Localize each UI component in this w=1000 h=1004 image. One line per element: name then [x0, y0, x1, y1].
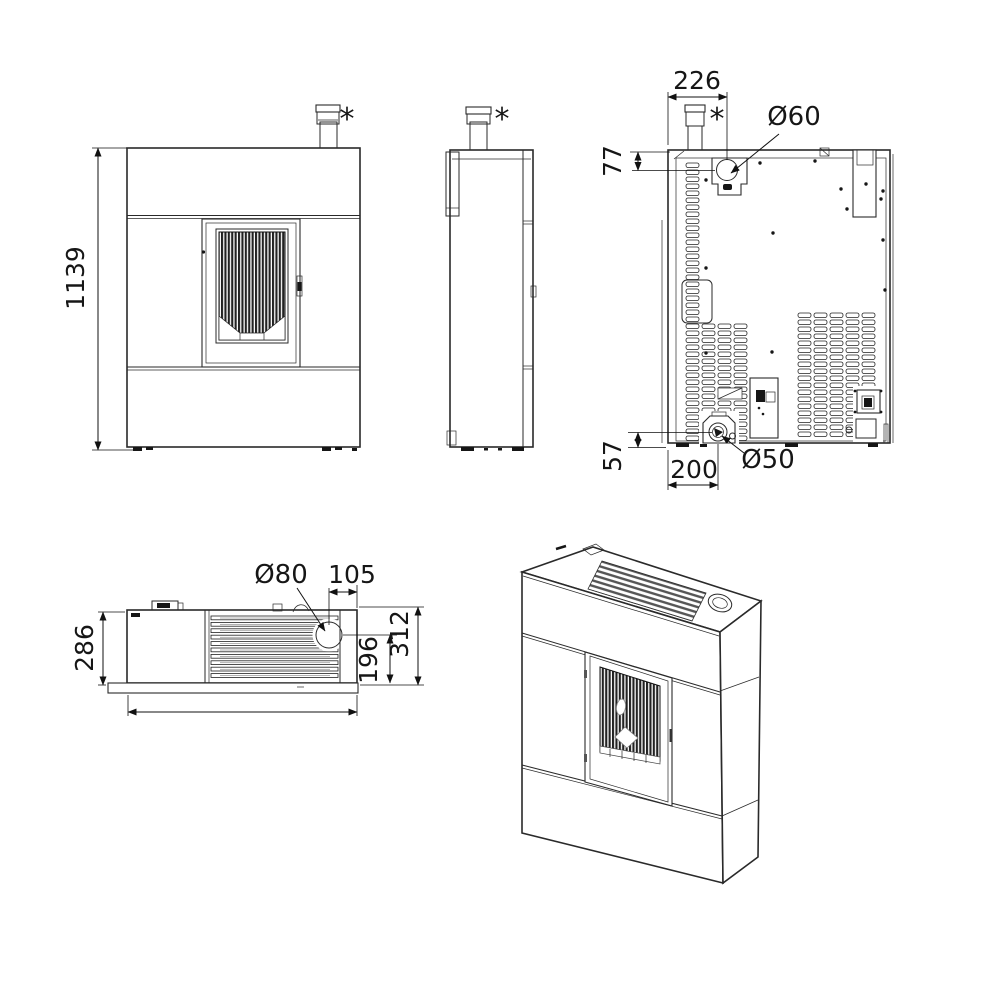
front-view: *: [61, 102, 360, 451]
front-door-hinge: [202, 250, 205, 253]
rear-chimney-pipe: [685, 105, 705, 150]
rear-view: *: [598, 66, 893, 490]
isometric-view: [522, 544, 761, 883]
top-105-label: 105: [328, 560, 376, 589]
side-view: *: [446, 102, 536, 451]
top-286-label: 286: [70, 624, 99, 672]
rear-chimney-asterisk: *: [710, 102, 725, 137]
front-chimney-pipe: [316, 105, 340, 148]
side-chimney-pipe: [466, 107, 491, 150]
top-d80-label: Ø80: [254, 560, 308, 590]
rear-flue-outlet: [699, 411, 739, 444]
front-chimney-asterisk: *: [340, 102, 355, 137]
dim-top-286: 286: [70, 612, 125, 685]
rear-226-label: 226: [673, 66, 721, 95]
dim-front-height: 1139: [61, 148, 133, 450]
top-front-edge: [108, 683, 358, 693]
side-body: [450, 150, 533, 447]
iso-right-face: [720, 601, 761, 883]
dim-top-width-unlabeled: [128, 695, 357, 716]
rear-d60-label: Ø60: [767, 102, 821, 132]
side-chimney-asterisk: *: [495, 102, 510, 137]
front-door: [202, 219, 302, 367]
top-312-label: 312: [385, 610, 414, 658]
rear-vent-column: [686, 163, 699, 322]
front-height-label: 1139: [61, 246, 90, 310]
top-view: 286 Ø80 105 196 312: [70, 560, 424, 716]
top-control-panel: [152, 601, 183, 610]
rear-57-label: 57: [598, 440, 627, 472]
iso-door: [584, 652, 672, 806]
pellet-stove-dimension-drawing: *: [0, 0, 1000, 1000]
rear-d50-label: Ø50: [741, 445, 795, 475]
rear-200-label: 200: [670, 455, 718, 484]
rear-77-label: 77: [598, 145, 627, 177]
top-196-label: 196: [354, 636, 383, 684]
dim-rear-200: 200: [668, 444, 718, 490]
drawing-canvas: *: [0, 0, 1000, 1000]
